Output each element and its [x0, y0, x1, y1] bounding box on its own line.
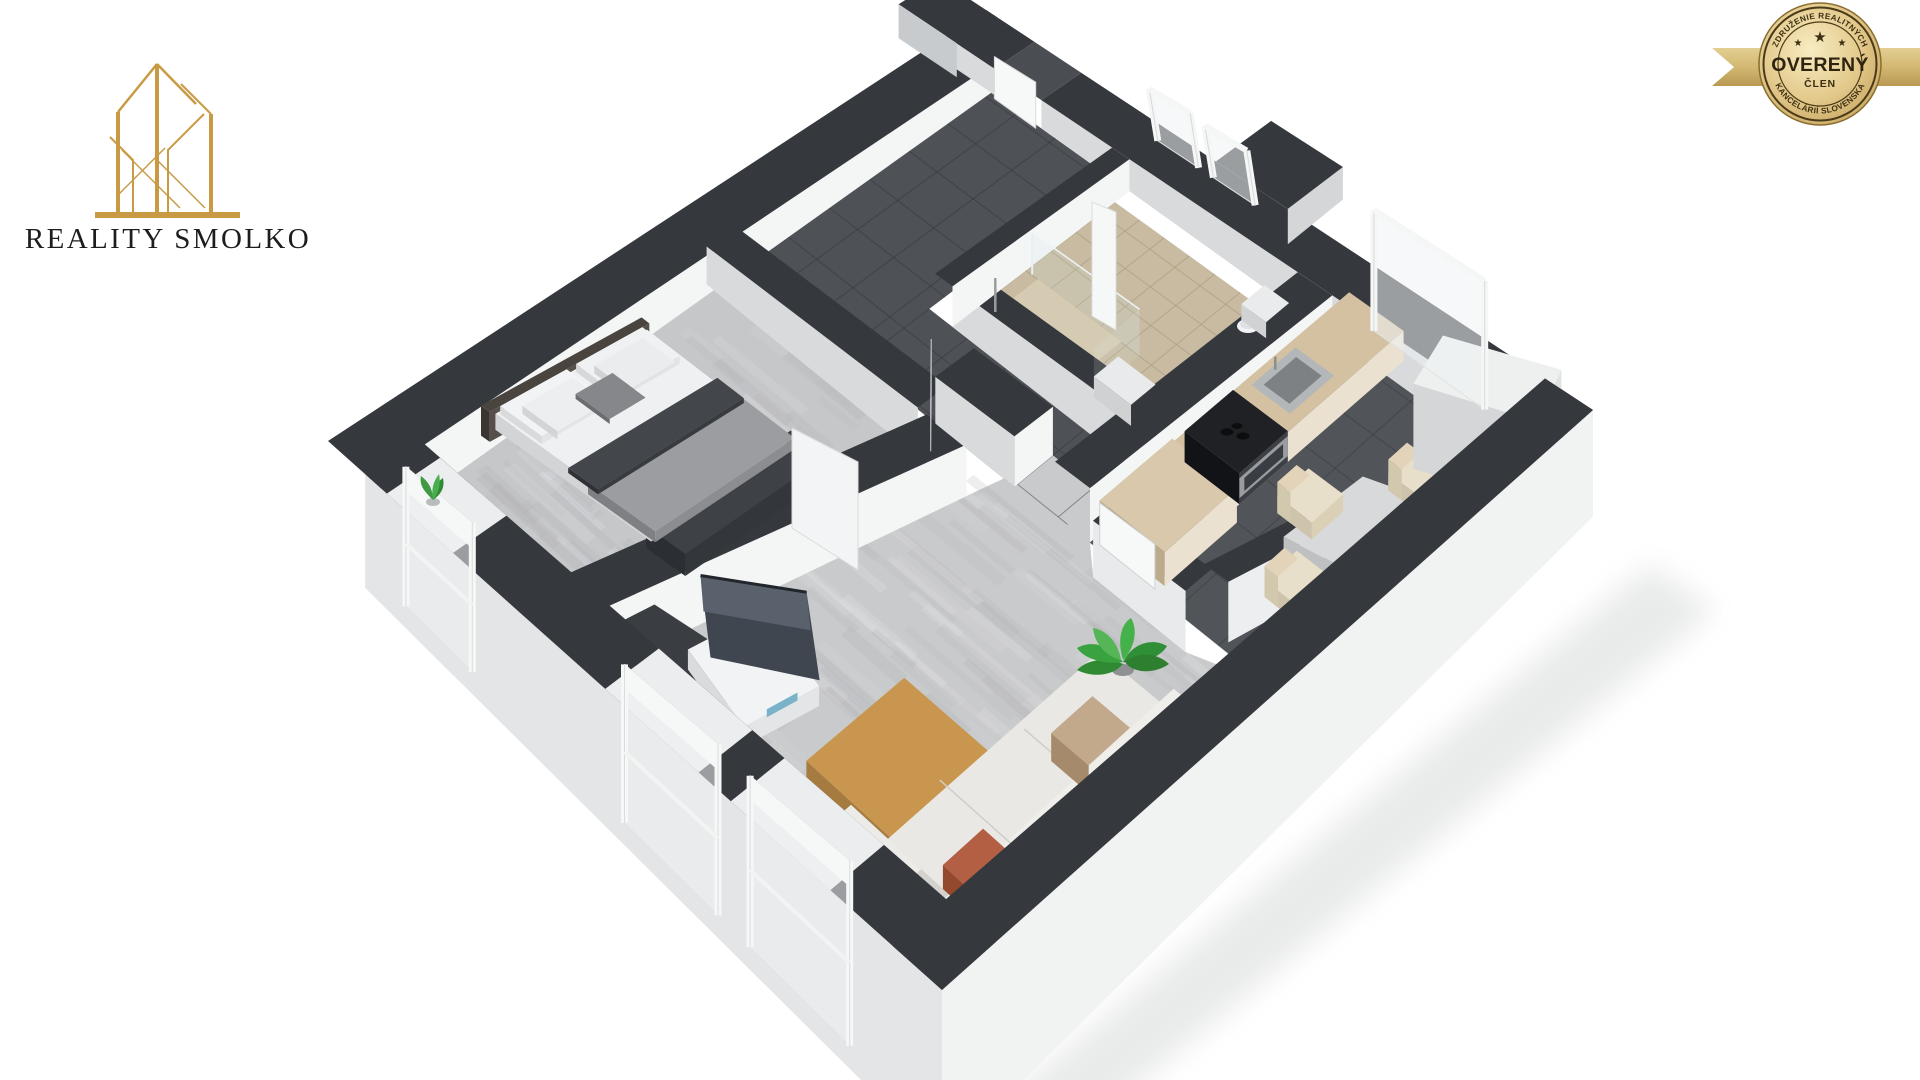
svg-text:★: ★ — [1794, 38, 1803, 49]
svg-text:★: ★ — [1813, 29, 1826, 46]
svg-text:ČLEN: ČLEN — [1804, 77, 1836, 90]
svg-text:REALITY SMOLKO: REALITY SMOLKO — [25, 223, 311, 255]
svg-text:★: ★ — [1838, 38, 1847, 49]
svg-text:OVERENÝ: OVERENÝ — [1771, 52, 1868, 76]
